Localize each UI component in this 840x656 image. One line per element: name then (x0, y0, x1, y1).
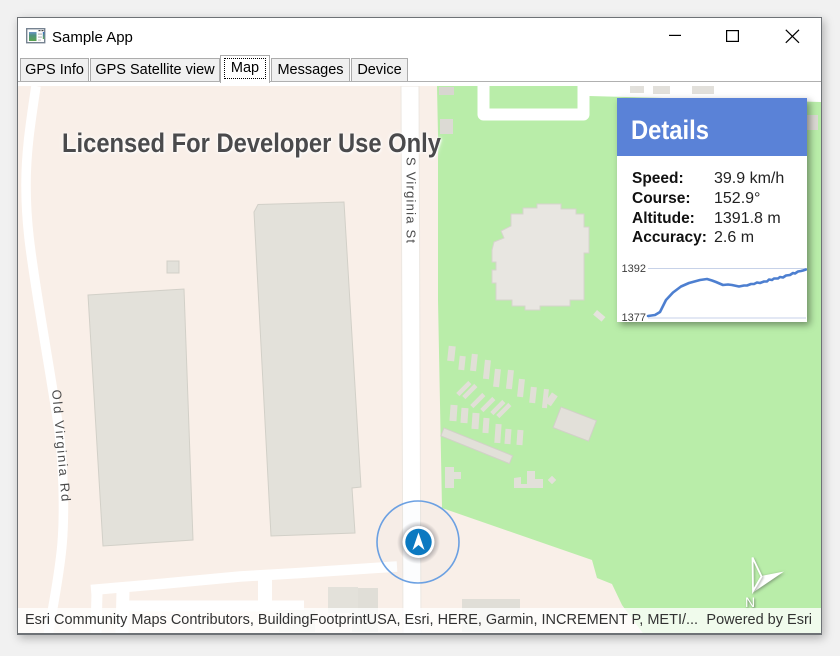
svg-text:1377: 1377 (622, 312, 646, 322)
svg-text:S Virginia St: S Virginia St (404, 157, 419, 243)
svg-text:1392: 1392 (622, 263, 646, 275)
